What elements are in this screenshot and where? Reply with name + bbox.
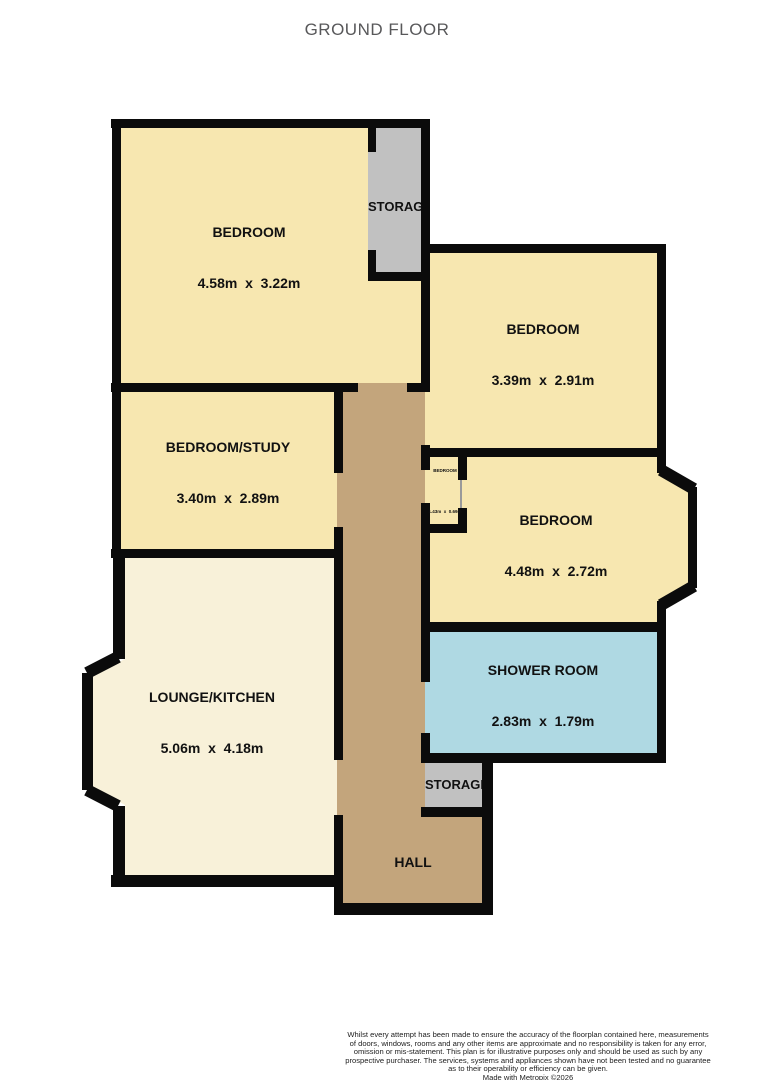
room-dims: 1.43m x 0.69m: [428, 509, 461, 514]
made-with-credit: Made with Metropix ©2026: [333, 1074, 723, 1080]
room-name: BEDROOM: [428, 468, 461, 473]
wall-segment: [113, 806, 125, 887]
wall-segment: [368, 272, 421, 281]
wall-segment: [334, 815, 343, 915]
disclaimer: Whilst every attempt has been made to en…: [333, 1031, 723, 1080]
bedroom-small-label: BEDROOM 1.43m x 0.69m: [428, 432, 461, 550]
shower-room-label: SHOWER ROOM 2.83m x 1.79m: [488, 627, 598, 765]
room-name: BEDROOM/STUDY: [166, 440, 290, 455]
room-dims: 4.48m x 2.72m: [505, 564, 608, 579]
wall-segment: [111, 383, 358, 392]
wall-segment: [421, 244, 666, 253]
floorplan-page: GROUND FLOOR: [0, 0, 776, 1080]
wall-segment: [111, 119, 430, 128]
lounge-kitchen-label: LOUNGE/KITCHEN 5.06m x 4.18m: [149, 654, 275, 792]
bedroom2-label: BEDROOM 3.39m x 2.91m: [492, 286, 595, 424]
wall-segment: [407, 383, 430, 392]
wall-segment: [421, 625, 430, 682]
wall-segment: [368, 128, 376, 152]
room-name: SHOWER ROOM: [488, 663, 598, 678]
wall-segment: [111, 549, 343, 558]
storage-bottom-label: STORAGE: [425, 776, 482, 794]
room-dims: 3.40m x 2.89m: [166, 491, 290, 506]
wall-segment: [657, 632, 666, 763]
wall-segment: [334, 553, 343, 760]
room-dims: 2.83m x 1.79m: [488, 714, 598, 729]
room-name: BEDROOM: [505, 513, 608, 528]
wall-segment: [421, 119, 430, 392]
room-dims: 3.39m x 2.91m: [492, 373, 595, 388]
room-dims: 4.58m x 3.22m: [198, 276, 301, 291]
room-name: BEDROOM: [492, 322, 595, 337]
wall-segment: [334, 903, 493, 915]
wall-segment: [112, 119, 121, 558]
wall-segment: [334, 392, 343, 473]
wall-segment: [657, 244, 666, 457]
room-name: LOUNGE/KITCHEN: [149, 690, 275, 705]
wall-segment: [482, 763, 493, 913]
bedroom-study-label: BEDROOM/STUDY 3.40m x 2.89m: [166, 404, 290, 542]
bedroom1-label: BEDROOM 4.58m x 3.22m: [198, 189, 301, 327]
hall-label: HALL: [394, 854, 431, 870]
storage-top-label: STORAGE: [368, 198, 421, 216]
bedroom3-label: BEDROOM 4.48m x 2.72m: [505, 477, 608, 615]
wall-segment: [113, 553, 125, 659]
room-dims: 5.06m x 4.18m: [149, 741, 275, 756]
floorplan-drawing: [0, 0, 776, 1080]
wall-segment: [111, 875, 343, 887]
wall-segment: [82, 673, 93, 790]
wall-segment: [688, 487, 697, 588]
room-name: BEDROOM: [198, 225, 301, 240]
